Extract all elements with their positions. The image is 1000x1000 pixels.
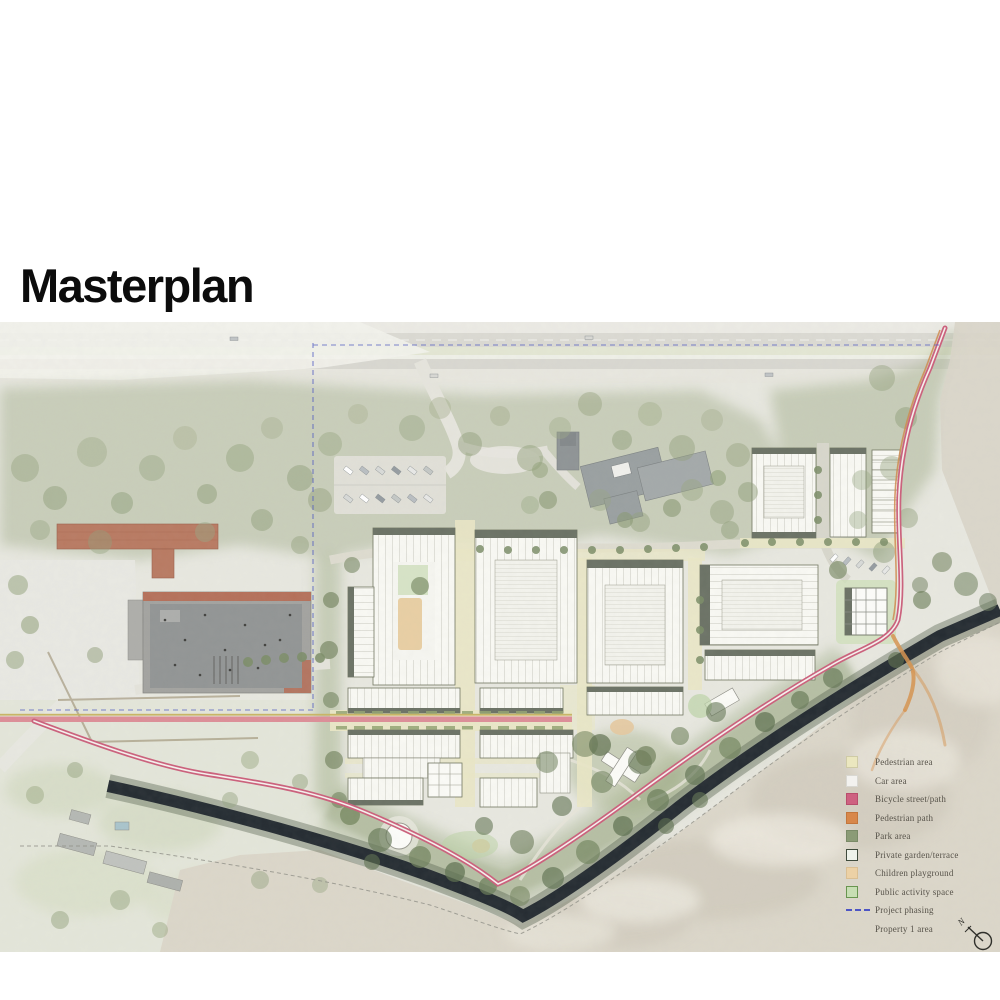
- legend-label-project-phasing: Project phasing: [875, 905, 934, 915]
- legend-swatch-bicycle-street-path: [846, 793, 875, 805]
- compass-north-label: N: [955, 915, 968, 928]
- legend-swatch-pedestrian-path: [846, 812, 875, 824]
- legend-swatch-park-area: [846, 830, 875, 842]
- legend-label-public-activity-space: Public activity space: [875, 887, 954, 897]
- legend-item-children-playground: Children playground: [846, 867, 986, 879]
- legend-swatch-private-garden-terrace: [846, 849, 875, 861]
- legend-label-car-area: Car area: [875, 776, 907, 786]
- legend-label-pedestrian-path: Pedestrian path: [875, 813, 933, 823]
- legend-item-bicycle-street-path: Bicycle street/path: [846, 793, 986, 805]
- legend-swatch-public-activity-space: [846, 886, 875, 898]
- legend-label-private-garden-terrace: Private garden/terrace: [875, 850, 959, 860]
- legend-swatch-car-area: [846, 775, 875, 787]
- masterplan-page: Masterplan: [0, 0, 1000, 1000]
- north-compass: N: [950, 914, 998, 958]
- legend-item-pedestrian-area: Pedestrian area: [846, 756, 986, 768]
- page-title: Masterplan: [20, 258, 253, 313]
- legend-label-park-area: Park area: [875, 831, 911, 841]
- compass-needle: [968, 927, 983, 941]
- legend-label-children-playground: Children playground: [875, 868, 954, 878]
- legend-swatch-project-phasing: [846, 909, 875, 911]
- legend-swatch-children-playground: [846, 867, 875, 879]
- legend-label-pedestrian-area: Pedestrian area: [875, 757, 933, 767]
- legend-item-pedestrian-path: Pedestrian path: [846, 812, 986, 824]
- legend-item-private-garden-terrace: Private garden/terrace: [846, 849, 986, 861]
- legend-label-bicycle-street-path: Bicycle street/path: [875, 794, 946, 804]
- legend-swatch-pedestrian-area: [846, 756, 875, 768]
- legend-label-property-1-area: Property 1 area: [875, 924, 933, 934]
- legend-item-public-activity-space: Public activity space: [846, 886, 986, 898]
- legend-item-car-area: Car area: [846, 775, 986, 787]
- legend-item-park-area: Park area: [846, 830, 986, 842]
